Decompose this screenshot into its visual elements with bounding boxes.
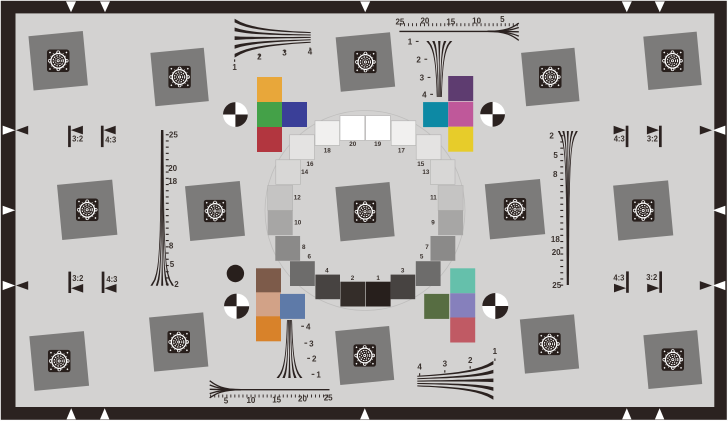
svg-text:3: 3 — [309, 339, 314, 348]
svg-text:12: 12 — [294, 195, 302, 202]
svg-text:20: 20 — [349, 141, 357, 148]
svg-text:4:3: 4:3 — [613, 272, 624, 282]
svg-text:18: 18 — [324, 148, 332, 155]
svg-text:14: 14 — [301, 169, 309, 176]
svg-text:20: 20 — [552, 248, 561, 257]
svg-text:4: 4 — [325, 268, 329, 275]
svg-text:17: 17 — [398, 148, 406, 155]
svg-text:2: 2 — [351, 275, 355, 282]
svg-text:10: 10 — [246, 396, 255, 405]
svg-text:2: 2 — [549, 131, 554, 140]
svg-text:20: 20 — [420, 17, 429, 26]
svg-text:5: 5 — [553, 151, 558, 160]
svg-text:6: 6 — [307, 253, 311, 260]
svg-text:1: 1 — [408, 38, 413, 47]
svg-text:25: 25 — [324, 394, 333, 403]
svg-text:15: 15 — [417, 161, 425, 168]
svg-text:4: 4 — [308, 48, 313, 57]
svg-text:1: 1 — [316, 371, 321, 380]
svg-text:1: 1 — [376, 275, 380, 282]
svg-text:18: 18 — [551, 235, 560, 244]
svg-text:3: 3 — [401, 268, 405, 275]
svg-text:3: 3 — [420, 74, 425, 83]
svg-text:3: 3 — [443, 360, 448, 369]
svg-text:1: 1 — [232, 63, 237, 72]
svg-text:5: 5 — [170, 260, 175, 269]
svg-text:18: 18 — [168, 177, 177, 186]
svg-text:4: 4 — [417, 362, 422, 371]
svg-text:8: 8 — [169, 241, 174, 250]
svg-text:16: 16 — [306, 161, 314, 168]
svg-text:8: 8 — [302, 244, 306, 251]
svg-text:5: 5 — [420, 253, 424, 260]
svg-text:4: 4 — [306, 322, 311, 331]
svg-text:11: 11 — [430, 195, 437, 202]
svg-text:2: 2 — [257, 53, 262, 62]
svg-text:25: 25 — [395, 17, 404, 26]
svg-text:4: 4 — [422, 91, 427, 100]
svg-text:15: 15 — [272, 395, 281, 404]
svg-text:25: 25 — [552, 281, 561, 290]
svg-text:19: 19 — [374, 141, 382, 148]
svg-text:10: 10 — [294, 219, 302, 226]
svg-text:3:2: 3:2 — [647, 133, 658, 143]
svg-text:2: 2 — [174, 280, 179, 289]
svg-text:15: 15 — [446, 18, 455, 27]
svg-text:4:3: 4:3 — [106, 274, 117, 284]
svg-text:25: 25 — [169, 130, 178, 139]
svg-text:3:2: 3:2 — [72, 273, 83, 283]
svg-text:13: 13 — [422, 169, 430, 176]
svg-text:3:2: 3:2 — [72, 133, 83, 143]
svg-text:3: 3 — [282, 49, 287, 58]
svg-text:4:3: 4:3 — [105, 134, 116, 144]
svg-text:4:3: 4:3 — [614, 134, 625, 144]
svg-text:20: 20 — [298, 394, 307, 403]
svg-text:5: 5 — [224, 396, 229, 405]
svg-text:1: 1 — [493, 347, 498, 356]
svg-text:5: 5 — [500, 15, 505, 24]
svg-text:7: 7 — [425, 244, 429, 251]
svg-text:2: 2 — [312, 355, 317, 364]
svg-text:20: 20 — [168, 164, 177, 173]
svg-text:2: 2 — [416, 55, 421, 64]
svg-text:2: 2 — [468, 356, 473, 365]
svg-text:3:2: 3:2 — [646, 272, 657, 282]
svg-text:8: 8 — [553, 170, 558, 179]
svg-text:9: 9 — [431, 219, 435, 226]
svg-text:10: 10 — [472, 16, 481, 25]
